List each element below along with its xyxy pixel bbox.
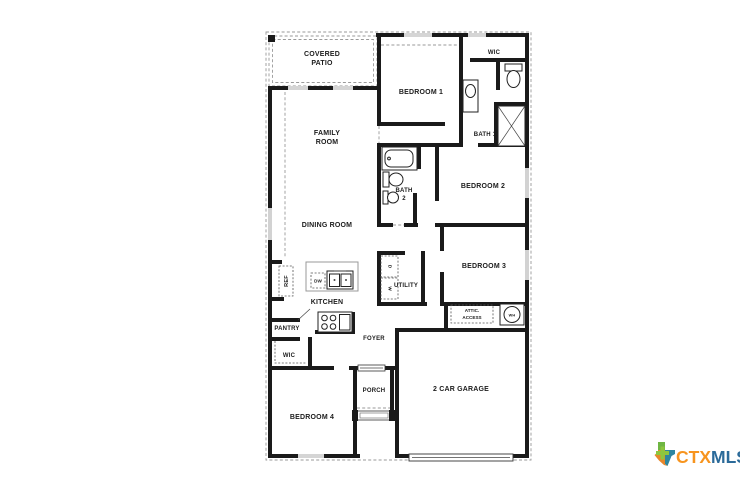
wic1-label: WIC [488,50,501,56]
dining-room-label: DINING ROOM [302,222,352,229]
bedroom1-label: BEDROOM 1 [399,89,443,96]
bedroom3-label: BEDROOM 3 [462,263,506,270]
water-heater-label: WH [509,313,516,317]
family-room-label-1: FAMILY [314,130,340,137]
ctxmls-logo: CTXMLS [655,442,740,467]
window-bedroom4-bottom [298,454,324,458]
utility-fixtures: D W [381,256,398,299]
bath2-fixtures [382,147,417,204]
svg-text:CTXMLS: CTXMLS [676,447,740,467]
attic-access-line2: ACCESS [462,315,481,320]
window-family-patio-2 [333,86,353,90]
garage-door [409,454,513,461]
window-bedroom2-right [525,168,529,198]
logo-ctx: CTX [676,447,711,467]
bath2-label-2: 2 [402,196,406,202]
bathtub-icon [382,147,417,170]
window-family-patio-1 [288,86,308,90]
attic-access-line1: ATTIC. [465,308,479,313]
covered-patio-label-2: PATIO [311,60,333,67]
porch-step [352,410,395,421]
kitchen-label: KITCHEN [311,299,344,306]
window-wic-top [468,33,486,37]
window-bedroom1-top [404,33,432,37]
floor-plan-image: DW D W WH ATTIC. ACCESS [0,0,740,480]
floor-plan-svg: DW D W WH ATTIC. ACCESS [0,0,740,480]
toilet-icon [505,64,522,88]
island-sink-icon [327,271,353,289]
toilet2-icon [383,172,403,187]
bath2-label-1: BATH [395,188,412,194]
pantry-door [298,309,310,320]
bedroom2-label: BEDROOM 2 [461,183,505,190]
shower-icon [498,106,525,146]
window-bedroom3-right [525,250,529,280]
patio-post [268,35,275,42]
garage-label: 2 CAR GARAGE [433,386,489,393]
family-room-label-2: ROOM [316,139,339,146]
texas-icon [655,442,676,466]
washer-label: W [388,286,393,291]
utility-label: UTILITY [394,283,418,289]
range-icon [318,312,352,332]
bedroom4-label: BEDROOM 4 [290,414,334,421]
front-door [358,365,385,371]
mechanical: WH ATTIC. ACCESS [451,304,524,325]
bath1-sink-icon [463,80,478,112]
foyer-label: FOYER [363,336,385,342]
pantry-label: PANTRY [274,326,299,332]
dishwasher-label: DW [314,279,322,284]
porch-label: PORCH [363,388,386,394]
bath1-label: BATH 1 [474,132,497,138]
window-dining-left [268,208,272,240]
dryer-label: D [388,265,393,269]
walls [268,33,529,458]
covered-patio-label-1: COVERED [304,51,340,58]
logo-mls: MLS [711,447,740,467]
ref-label: REF [284,275,290,287]
wic2-label: WIC [283,353,296,359]
